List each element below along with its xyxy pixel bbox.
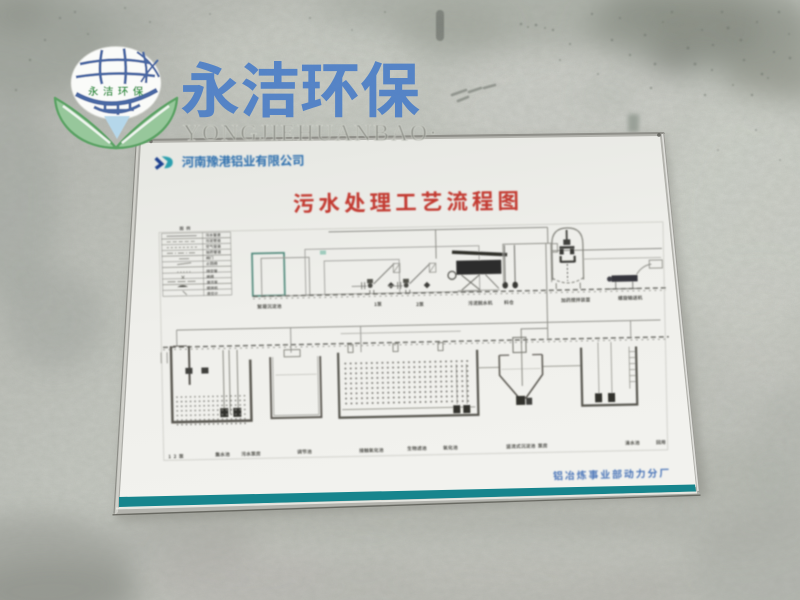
svg-text:YONGJIEHUANBAO·: YONGJIEHUANBAO· — [183, 121, 439, 147]
